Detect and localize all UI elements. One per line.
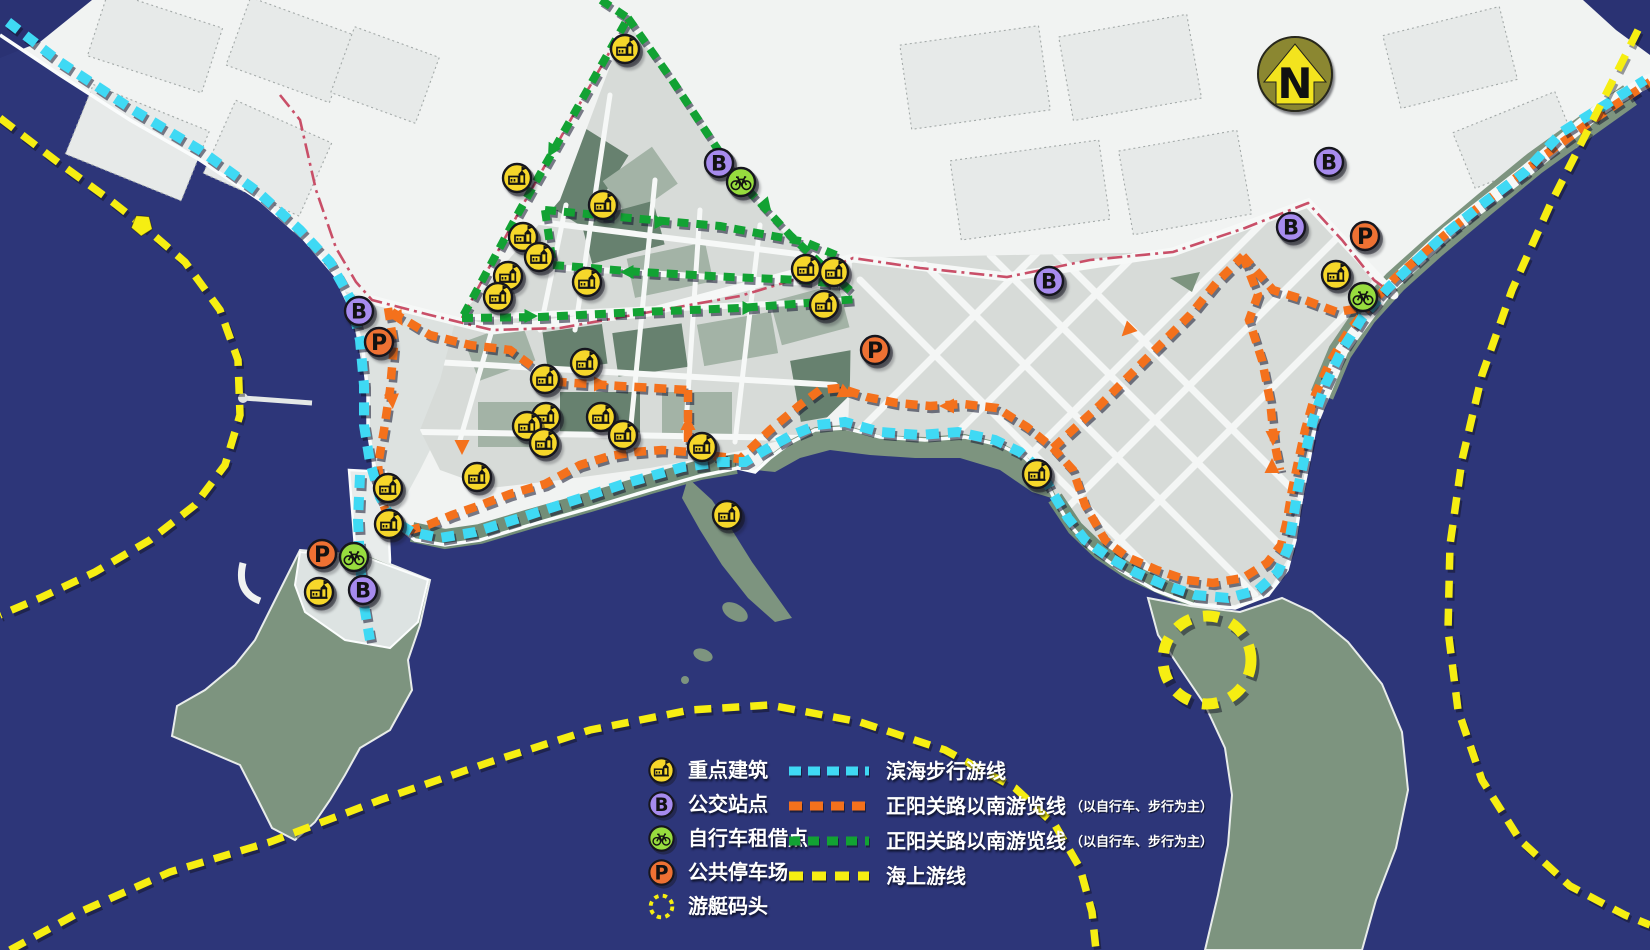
legend-label: 正阳关路以南游览线 (886, 796, 1066, 816)
legend-route-item-2: 正阳关路以南游览线（以自行车、步行为主） (786, 823, 1213, 858)
wharf-icon (645, 890, 678, 923)
north-arrow: N (1258, 37, 1332, 111)
route-swatch (786, 835, 872, 847)
legend-route-item-1: 正阳关路以南游览线（以自行车、步行为主） (786, 788, 1213, 823)
legend-line-items: 滨海步行游线正阳关路以南游览线（以自行车、步行为主）正阳关路以南游览线（以自行车… (786, 753, 1213, 893)
bus-icon (645, 788, 678, 821)
legend-label: 公共停车场 (688, 862, 788, 882)
legend-label: 游艇码头 (688, 896, 768, 916)
legend-label: 公交站点 (688, 794, 768, 814)
legend-route-item-3: 海上游线 (786, 858, 1213, 893)
parking-icon (645, 856, 678, 889)
route-swatch (786, 765, 872, 777)
legend-note: （以自行车、步行为主） (1070, 831, 1213, 850)
legend-point-items: 重点建筑公交站点自行车租借点公共停车场游艇码头 (645, 753, 808, 923)
legend-note: （以自行车、步行为主） (1070, 796, 1213, 815)
legend-route-item-0: 滨海步行游线 (786, 753, 1213, 788)
legend-item-bike: 自行车租借点 (645, 821, 808, 855)
bike-icon (645, 822, 678, 855)
legend-item-building: 重点建筑 (645, 753, 808, 787)
building-icon (645, 754, 678, 787)
legend-label: 滨海步行游线 (886, 761, 1006, 781)
legend-label: 重点建筑 (688, 760, 768, 780)
tour-map: B P (0, 0, 1650, 950)
legend-item-bus: 公交站点 (645, 787, 808, 821)
legend-item-wharf: 游艇码头 (645, 889, 808, 923)
route-swatch (786, 870, 872, 882)
legend-label: 海上游线 (886, 866, 966, 886)
legend-label: 正阳关路以南游览线 (886, 831, 1066, 851)
north-label: N (1277, 59, 1312, 108)
route-swatch (786, 800, 872, 812)
legend-item-parking: 公共停车场 (645, 855, 808, 889)
